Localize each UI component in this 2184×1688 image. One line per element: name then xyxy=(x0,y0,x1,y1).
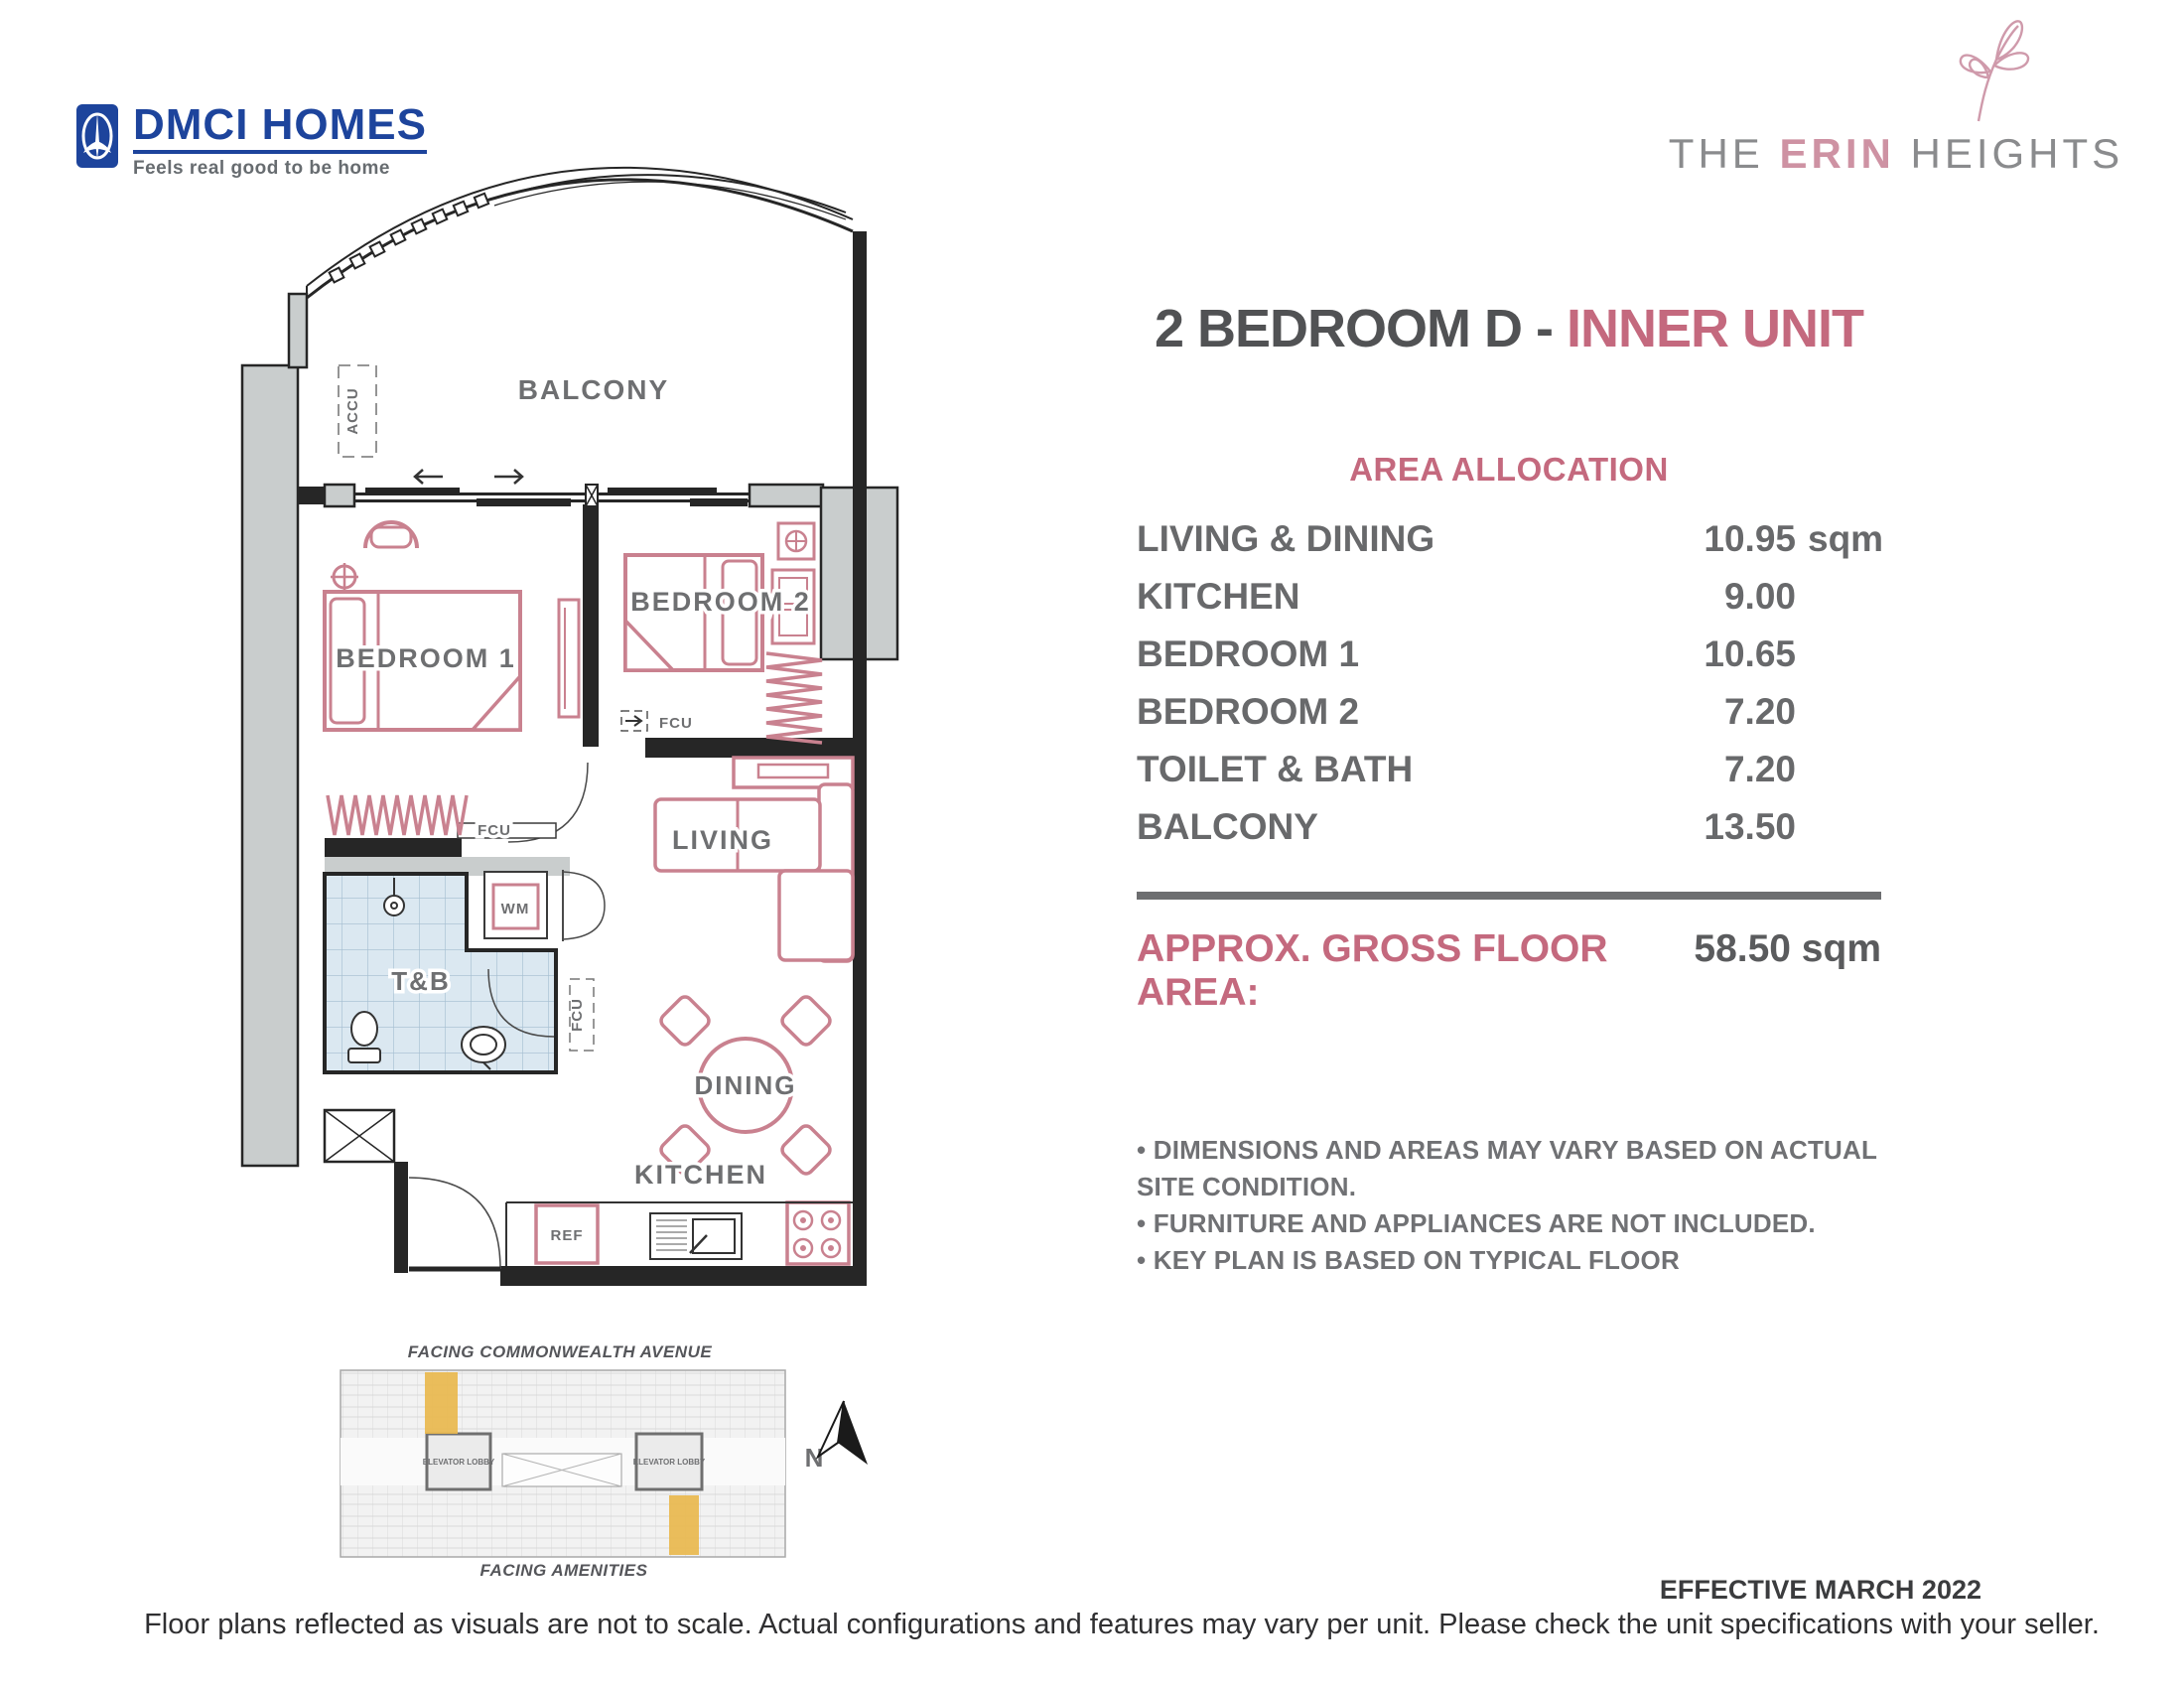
key-plan: FACING COMMONWEALTH AVENUE ELEVATOR LOBB… xyxy=(328,1336,884,1584)
erin-word-heights: HEIGHTS xyxy=(1911,130,2124,177)
keyplan-bottom-caption: FACING AMENITIES xyxy=(480,1561,648,1580)
highlighted-unit xyxy=(425,1372,458,1434)
bedroom1-label: BEDROOM 1 xyxy=(336,643,516,673)
fcu-bedroom2: FCU xyxy=(621,711,693,732)
closet-doors xyxy=(563,870,605,941)
note-line: • FURNITURE AND APPLIANCES ARE NOT INCLU… xyxy=(1137,1205,1881,1242)
unit-title-accent: INNER UNIT xyxy=(1567,299,1863,358)
row-value: 13.50 xyxy=(1627,806,1796,848)
balcony-parapet xyxy=(307,168,853,298)
divider xyxy=(1137,892,1881,900)
area-allocation-heading: AREA ALLOCATION xyxy=(1137,451,1881,489)
disclaimer: Floor plans reflected as visuals are not… xyxy=(0,1609,2184,1641)
balcony-label: BALCONY xyxy=(518,374,669,405)
fcu-label: FCU xyxy=(659,715,693,732)
keyplan-top-caption: FACING COMMONWEALTH AVENUE xyxy=(408,1342,713,1361)
gross-value: 58.50 sqm xyxy=(1694,927,1881,971)
note-line: • KEY PLAN IS BASED ON TYPICAL FLOOR xyxy=(1137,1242,1881,1279)
shaft xyxy=(325,1110,394,1162)
dmci-wordmark: DMCI HOMES xyxy=(133,103,427,147)
slide-arrow-icon xyxy=(415,470,522,484)
erin-heights-logo: THE ERIN HEIGHTS xyxy=(1648,16,2144,178)
erin-word-the: THE xyxy=(1669,130,1764,177)
living-label: LIVING xyxy=(672,825,773,855)
ref-label: REF xyxy=(551,1227,584,1244)
leaf-icon xyxy=(1931,16,2040,123)
table-row: BEDROOM 1 10.65 xyxy=(1137,633,1881,691)
effective-date: EFFECTIVE MARCH 2022 xyxy=(1660,1575,1981,1606)
row-value: 7.20 xyxy=(1627,691,1796,733)
row-label: TOILET & BATH xyxy=(1137,749,1627,790)
fcu-label: FCU xyxy=(478,822,511,839)
tb-label: T&B xyxy=(391,966,450,996)
table-row: TOILET & BATH 7.20 xyxy=(1137,749,1881,806)
parapet-vents xyxy=(330,194,489,283)
area-table: LIVING & DINING 10.95 sqm KITCHEN 9.00 B… xyxy=(1137,518,1881,864)
row-label: BEDROOM 1 xyxy=(1137,633,1627,675)
notes: • DIMENSIONS AND AREAS MAY VARY BASED ON… xyxy=(1137,1132,1881,1279)
row-label: BALCONY xyxy=(1137,806,1627,848)
unit-title-main: 2 BEDROOM D - xyxy=(1155,299,1567,358)
dining-label: DINING xyxy=(695,1070,797,1100)
row-value: 10.65 xyxy=(1627,633,1796,675)
row-value: 7.20 xyxy=(1627,749,1796,790)
floor-plan: ACCU WM FCU FCU FCU xyxy=(238,149,913,1301)
keyplan-building: ELEVATOR LOBBY ELEVATOR LOBBY xyxy=(341,1370,785,1557)
note-line: • DIMENSIONS AND AREAS MAY VARY BASED ON… xyxy=(1137,1132,1881,1205)
kitchen-label: KITCHEN xyxy=(634,1160,767,1190)
row-label: BEDROOM 2 xyxy=(1137,691,1627,733)
elevator-lobby-label: ELEVATOR LOBBY xyxy=(423,1458,495,1467)
row-value: 9.00 xyxy=(1627,576,1796,618)
row-unit: sqm xyxy=(1796,518,1881,560)
north-arrow-icon: N xyxy=(805,1401,868,1473)
accu-label: ACCU xyxy=(344,387,361,434)
north-label: N xyxy=(805,1443,824,1473)
bedroom2-label: BEDROOM 2 xyxy=(630,587,811,617)
table-row: BEDROOM 2 7.20 xyxy=(1137,691,1881,749)
erin-word-erin: ERIN xyxy=(1779,130,1894,177)
fcu-label: FCU xyxy=(569,998,586,1032)
erin-wordmark: THE ERIN HEIGHTS xyxy=(1648,130,2144,178)
gross-floor-area: APPROX. GROSS FLOOR AREA: 58.50 sqm xyxy=(1137,927,1881,1015)
info-panel: 2 BEDROOM D - INNER UNIT AREA ALLOCATION… xyxy=(1137,298,1881,1279)
elevator-lobby-label: ELEVATOR LOBBY xyxy=(633,1458,706,1467)
unit-title: 2 BEDROOM D - INNER UNIT xyxy=(1137,298,1881,359)
table-row: BALCONY 13.50 xyxy=(1137,806,1881,864)
row-label: LIVING & DINING xyxy=(1137,518,1627,560)
table-row: LIVING & DINING 10.95 sqm xyxy=(1137,518,1881,576)
highlighted-unit xyxy=(669,1495,699,1555)
row-value: 10.95 xyxy=(1627,518,1796,560)
dmci-emblem-icon xyxy=(75,103,119,169)
gross-label: APPROX. GROSS FLOOR AREA: xyxy=(1137,927,1694,1015)
table-row: KITCHEN 9.00 xyxy=(1137,576,1881,633)
wm-label: WM xyxy=(501,901,530,917)
row-label: KITCHEN xyxy=(1137,576,1627,618)
